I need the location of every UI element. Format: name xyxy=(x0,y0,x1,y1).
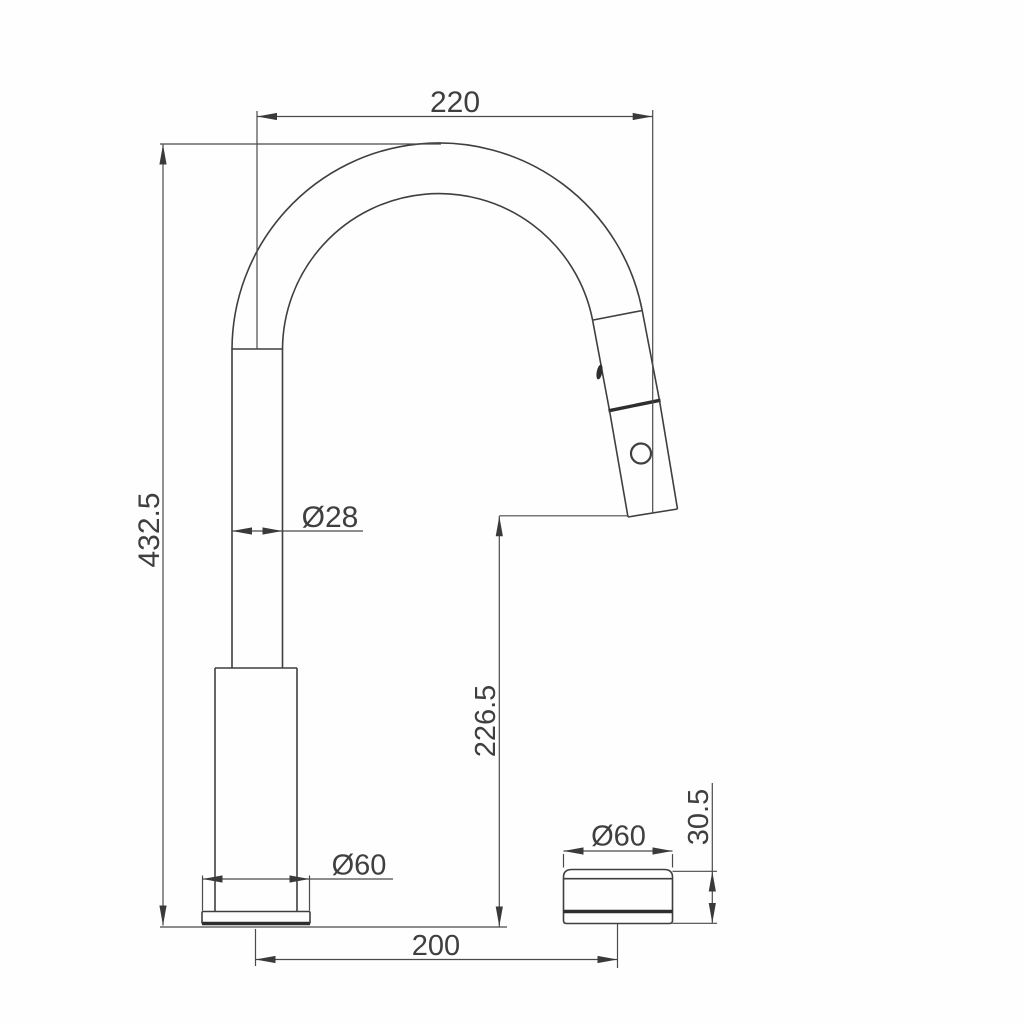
spray-head-left-edge xyxy=(610,411,629,518)
faucet-body xyxy=(160,143,678,927)
arrow-up-icon xyxy=(159,145,166,165)
spout-outer-arc xyxy=(232,143,642,350)
arrow-left-icon xyxy=(203,875,223,882)
remote-height-label: 30.5 xyxy=(683,789,715,845)
arrow-down-icon xyxy=(496,907,503,927)
spout-tube-diameter-label: Ø28 xyxy=(302,501,359,534)
outlet-height-label: 226.5 xyxy=(470,685,502,758)
hose-upper-joint-line xyxy=(593,311,643,321)
arrow-left-icon xyxy=(564,847,584,854)
arrow-left-icon xyxy=(232,527,252,534)
spout-reach-label: 220 xyxy=(430,86,480,119)
dimension-remote-height: 30.5 xyxy=(673,783,718,923)
remote-knob xyxy=(564,870,673,969)
spout-inner-arc xyxy=(283,194,593,350)
base-diameter-label: Ø60 xyxy=(332,850,387,882)
arrow-right-icon xyxy=(263,527,283,534)
hose-right-edge xyxy=(642,311,659,401)
spray-head-button-icon xyxy=(631,444,651,464)
arrow-down-icon xyxy=(159,906,166,926)
dimension-spout-reach: 220 xyxy=(257,86,653,513)
overall-height-label: 432.5 xyxy=(133,492,166,567)
center-spacing-label: 200 xyxy=(412,930,460,962)
arrow-right-icon xyxy=(290,875,310,882)
arrow-left-icon xyxy=(256,956,276,963)
arrow-left-icon xyxy=(257,113,277,120)
spray-head-right-edge xyxy=(660,401,678,510)
technical-drawing-canvas: 220 432.5 Ø28 226.5 Ø60 Ø xyxy=(0,0,1024,1024)
dimension-overall-height: 432.5 xyxy=(133,144,441,926)
arrow-up-icon xyxy=(496,516,503,536)
remote-diameter-label: Ø60 xyxy=(591,821,646,853)
dimension-outlet-height: 226.5 xyxy=(470,516,628,927)
arrow-right-icon xyxy=(653,847,673,854)
dimension-remote-diameter: Ø60 xyxy=(564,821,673,868)
dimension-center-spacing: 200 xyxy=(256,929,618,966)
arrow-right-icon xyxy=(633,113,653,120)
dimension-spout-tube-diameter: Ø28 xyxy=(232,501,363,535)
arrow-right-icon xyxy=(598,956,618,963)
faucet-dimension-drawing: 220 432.5 Ø28 226.5 Ø60 Ø xyxy=(0,0,1024,1024)
arrow-up-icon xyxy=(709,872,716,892)
arrow-down-icon xyxy=(709,903,716,923)
knob-outline xyxy=(564,870,673,924)
